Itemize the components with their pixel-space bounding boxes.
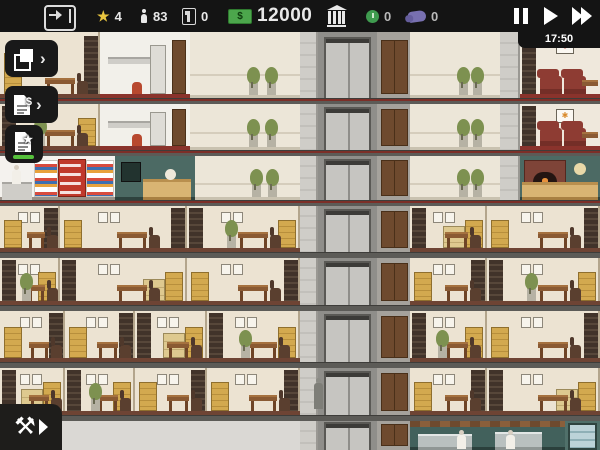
speed-controls	[514, 0, 592, 32]
closet	[189, 208, 203, 248]
office-chair	[120, 398, 131, 411]
desk-leg	[169, 348, 172, 358]
file-cabinet	[414, 382, 432, 411]
office-chair	[570, 398, 581, 411]
contracts-value: 0	[384, 9, 391, 24]
desk-leg	[240, 291, 243, 301]
armchair	[540, 128, 562, 146]
office-chair	[149, 288, 160, 301]
desk-leg	[264, 238, 267, 248]
office-unit[interactable]	[135, 310, 207, 362]
chevron-right-icon: ›	[36, 96, 42, 113]
plant-foliage	[471, 67, 484, 84]
wall-picture	[110, 264, 120, 275]
closet	[67, 370, 81, 411]
medical-office[interactable]	[100, 32, 190, 98]
lobby-doors[interactable]	[377, 32, 410, 98]
population-stat[interactable]: 83	[140, 9, 167, 24]
potted-plant-icon	[471, 117, 484, 147]
elevator-shaft[interactable]	[318, 103, 377, 150]
vacant-floor-space[interactable]	[410, 32, 500, 98]
file-cabinet	[165, 272, 183, 301]
bakery-counter	[522, 182, 598, 200]
chef-figure	[457, 430, 466, 450]
wall-picture	[433, 212, 443, 223]
desk-leg	[447, 291, 450, 301]
desk-leg	[564, 238, 567, 248]
wall-picture	[169, 374, 179, 385]
elevator-lobby-door	[381, 263, 395, 301]
fast-forward-icon[interactable]	[574, 7, 592, 25]
office-unit[interactable]	[207, 367, 300, 415]
deals-stat[interactable]: 0	[408, 9, 438, 24]
game-screen: ●✱ ★ 4 83 0 $ 12000 0 0 17:50	[0, 0, 600, 450]
closet	[137, 313, 151, 358]
menu-board	[121, 162, 141, 182]
desk-leg	[185, 348, 188, 358]
vacancy-value: 0	[201, 9, 208, 24]
elevator-cab	[324, 261, 371, 305]
plant-foliage	[20, 273, 33, 290]
file-cabinet	[4, 327, 22, 358]
medical-office[interactable]	[100, 103, 190, 150]
wall-picture	[32, 374, 42, 385]
wall-picture	[521, 374, 531, 385]
elevator-cab	[324, 422, 371, 450]
hammer-wrench-icon: ⚒	[14, 415, 36, 439]
desk-leg	[540, 401, 543, 411]
exit-door-icon[interactable]	[44, 5, 76, 31]
potted-plant-icon	[250, 167, 263, 197]
coffee-cup-sign	[165, 169, 176, 180]
elevator-cab	[324, 371, 371, 415]
office-chair	[470, 398, 481, 411]
contracts-stat[interactable]: 0	[366, 9, 391, 24]
floor-0: ●	[0, 32, 600, 98]
closet	[489, 260, 503, 301]
office-unit[interactable]	[65, 310, 135, 362]
potted-plant-icon	[247, 65, 260, 95]
wall-picture	[533, 374, 543, 385]
floor-3	[0, 205, 600, 252]
closet	[489, 370, 503, 411]
top-hud-bar: ★ 4 83 0 $ 12000 0 0	[0, 0, 600, 32]
medical-device	[150, 45, 166, 94]
lobby-wall[interactable]	[300, 155, 318, 200]
elevator-shaft[interactable]	[318, 420, 377, 450]
plant-foliage	[225, 220, 238, 237]
floor-slab	[0, 362, 600, 368]
office-chair	[77, 133, 88, 146]
office-unit[interactable]	[487, 367, 600, 415]
waiting-room[interactable]: ✱	[520, 103, 600, 150]
office-chair	[47, 235, 58, 248]
elevator-lobby-door	[394, 424, 408, 446]
lobby-doors[interactable]	[377, 205, 410, 252]
handshake-icon	[407, 9, 426, 22]
wall-picture	[445, 374, 455, 385]
desk-leg	[119, 291, 122, 301]
play-icon[interactable]	[544, 7, 558, 25]
plant-foliage	[247, 119, 260, 136]
lobby-wall[interactable]	[300, 32, 318, 98]
wall-picture	[30, 212, 40, 223]
office-chair	[120, 345, 131, 358]
floor-slab	[0, 252, 600, 258]
wall-picture	[433, 317, 443, 328]
vacant-floor-space[interactable]	[410, 155, 500, 200]
wall-picture	[235, 317, 245, 328]
elevator-shaft[interactable]	[318, 32, 377, 98]
potted-plant-icon	[457, 65, 470, 95]
exam-stool	[132, 134, 142, 146]
office-unit[interactable]	[65, 367, 135, 415]
desk-leg	[47, 136, 50, 146]
closet	[412, 208, 426, 248]
restaurant-kitchen[interactable]	[410, 420, 565, 450]
office-unit[interactable]	[410, 205, 487, 252]
office-unit[interactable]	[135, 367, 207, 415]
wall-picture	[247, 374, 257, 385]
plant-foliage	[247, 67, 260, 84]
office-unit[interactable]	[0, 257, 60, 305]
vacancy-stat[interactable]: 0	[182, 8, 208, 25]
desk-leg	[464, 238, 467, 248]
hanging-lamp	[574, 163, 586, 175]
office-chair	[149, 235, 160, 248]
prestige-stat[interactable]: ★ 4	[97, 8, 122, 25]
chevron-right-icon	[39, 419, 48, 435]
invoice-dollar-icon: $	[14, 95, 30, 115]
exam-stool	[132, 82, 142, 94]
floor-slab	[0, 305, 600, 311]
wall-picture	[98, 264, 108, 275]
office-chair	[77, 81, 88, 94]
elevator-lobby-door	[394, 373, 408, 411]
desk-leg	[540, 348, 543, 358]
desk-leg	[464, 401, 467, 411]
floor-slab	[0, 98, 600, 104]
wall-picture	[445, 264, 455, 275]
office-chair	[191, 398, 202, 411]
plant-foliage	[436, 330, 449, 347]
desk-leg	[540, 238, 543, 248]
tower-cross-section[interactable]: ●✱	[0, 0, 600, 450]
lobby-doors[interactable]	[377, 420, 410, 450]
office-unit[interactable]	[0, 310, 65, 362]
plant-foliage	[457, 119, 470, 136]
coffee-shop[interactable]	[115, 155, 195, 200]
lobby-doors[interactable]	[377, 310, 410, 362]
floor-1: ✱	[0, 103, 600, 150]
wall-picture	[157, 374, 167, 385]
money-stat[interactable]: $ 12000	[228, 5, 312, 27]
plant-foliage	[457, 169, 470, 186]
build-menu-button[interactable]: ⚒	[0, 404, 62, 450]
office-unit[interactable]	[487, 310, 600, 362]
elevator-lobby-door	[381, 109, 395, 146]
room-door	[172, 40, 186, 94]
potted-plant-icon	[471, 65, 484, 95]
wall-picture	[221, 264, 231, 275]
copy-pages-icon	[14, 49, 34, 69]
wall-picture	[98, 374, 108, 385]
armchair	[540, 76, 562, 94]
lobby-wall[interactable]	[300, 310, 318, 362]
prestige-value: 4	[115, 9, 122, 24]
wall-picture	[98, 317, 108, 328]
desk-leg	[71, 84, 74, 94]
file-cabinet	[139, 382, 157, 411]
red-fridge-case	[58, 159, 86, 197]
closet	[412, 313, 426, 358]
office-chair	[570, 345, 581, 358]
office-unit[interactable]	[207, 310, 300, 362]
potted-plant-icon	[471, 167, 484, 197]
office-chair	[270, 235, 281, 248]
elevator-lobby-door	[394, 160, 408, 196]
floor-6	[0, 367, 600, 415]
desk-leg	[273, 401, 276, 411]
office-chair	[570, 235, 581, 248]
plant-foliage	[457, 67, 470, 84]
file-cabinet	[69, 327, 87, 358]
potted-plant-icon	[457, 167, 470, 197]
desk-leg	[240, 238, 243, 248]
desk-leg	[114, 348, 117, 358]
office-unit[interactable]	[187, 205, 300, 252]
desk-leg	[31, 348, 34, 358]
active-indicator	[13, 155, 34, 159]
desk-leg	[251, 401, 254, 411]
closet	[584, 208, 598, 248]
person-figure[interactable]	[314, 378, 323, 415]
wall-picture	[20, 374, 30, 385]
plant-foliage	[525, 273, 538, 290]
finances-report-button[interactable]: $ ›	[5, 86, 58, 123]
bakery-shop[interactable]	[520, 155, 600, 200]
elevator-lobby-door	[394, 263, 408, 301]
plant-foliage	[471, 119, 484, 136]
population-value: 83	[153, 9, 167, 24]
product-shelves	[34, 160, 58, 197]
plant-foliage	[265, 67, 278, 84]
elevator-lobby-door	[381, 316, 395, 358]
money-value: 12000	[257, 5, 312, 27]
lobby-wall[interactable]	[300, 205, 318, 252]
elevator-cab	[324, 314, 371, 362]
office-chair	[470, 288, 481, 301]
floor-slab	[0, 150, 600, 156]
file-cabinet	[414, 272, 432, 301]
lobby-wall[interactable]	[500, 32, 520, 98]
desk-leg	[447, 401, 450, 411]
game-clock: 17:50	[518, 32, 600, 48]
potted-plant-icon	[525, 277, 538, 301]
desk-leg	[273, 348, 276, 358]
clerk-figure	[12, 165, 21, 184]
closet	[284, 260, 298, 301]
potted-plant-icon	[20, 277, 33, 301]
wall-picture	[521, 212, 531, 223]
wall-picture	[445, 317, 455, 328]
desk-leg	[447, 238, 450, 248]
chef-figure	[506, 430, 515, 450]
vacant-floor-space[interactable]	[410, 103, 500, 150]
desk-leg	[41, 238, 44, 248]
drink-cooler-room[interactable]	[565, 420, 600, 450]
office-unit[interactable]	[60, 257, 187, 305]
office-chair	[570, 288, 581, 301]
checkout-counter	[2, 182, 32, 200]
floor-slab	[0, 200, 600, 206]
wall-picture	[533, 212, 543, 223]
lobby-doors[interactable]	[377, 367, 410, 415]
desk-leg	[264, 291, 267, 301]
desk-leg	[169, 401, 172, 411]
desk-leg	[45, 348, 48, 358]
closet	[171, 208, 185, 248]
potted-plant-icon	[247, 117, 260, 147]
wall-picture	[98, 212, 108, 223]
deals-value: 0	[431, 9, 438, 24]
bank-button[interactable]	[328, 8, 345, 24]
lobby-wall[interactable]	[500, 103, 520, 150]
wall-picture	[169, 317, 179, 328]
reception-desk	[582, 80, 598, 86]
pause-icon[interactable]	[514, 8, 528, 24]
office-unit[interactable]	[60, 205, 187, 252]
elevator-shaft[interactable]	[318, 257, 377, 305]
plant-foliage	[471, 169, 484, 186]
wall-picture	[235, 374, 245, 385]
wall-picture	[433, 264, 443, 275]
wall-picture	[445, 212, 455, 223]
plant-foliage	[89, 383, 102, 400]
wall-picture	[233, 264, 243, 275]
drink-cooler	[568, 423, 597, 450]
cafe-counter	[143, 179, 191, 200]
file-cabinet	[64, 220, 82, 248]
office-unit[interactable]	[187, 257, 300, 305]
wall-picture	[157, 317, 167, 328]
vacant-floor-space[interactable]	[190, 103, 300, 150]
office-chair	[270, 288, 281, 301]
potted-plant-icon	[457, 117, 470, 147]
lobby-wall[interactable]	[300, 103, 318, 150]
desk-leg	[71, 136, 74, 146]
elevator-shaft[interactable]	[318, 155, 377, 200]
elevator-shaft[interactable]	[318, 205, 377, 252]
cash-bill-icon: $	[228, 9, 252, 24]
desk-leg	[29, 238, 32, 248]
elevator-lobby-door	[381, 211, 395, 248]
desk-leg	[143, 291, 146, 301]
office-unit[interactable]	[410, 310, 487, 362]
desk-leg	[464, 348, 467, 358]
desk-leg	[540, 291, 543, 301]
elevator-cab	[324, 159, 371, 200]
office-chair	[470, 345, 481, 358]
vacant-floor-space[interactable]	[190, 32, 300, 98]
plant-foliage	[239, 330, 252, 347]
desk-leg	[564, 291, 567, 301]
office-unit[interactable]	[487, 205, 600, 252]
floor-5	[0, 310, 600, 362]
contracts-report-button[interactable]: ★	[5, 125, 43, 163]
office-chair	[191, 345, 202, 358]
lobby-wall[interactable]	[300, 420, 318, 450]
office-chair	[279, 398, 290, 411]
wall-picture	[110, 212, 120, 223]
desk-leg	[119, 238, 122, 248]
product-shelves	[86, 160, 114, 197]
medical-device	[150, 112, 166, 146]
lobby-doors[interactable]	[377, 257, 410, 305]
desk-leg	[564, 401, 567, 411]
decor-shelf	[410, 420, 565, 427]
copy-tool-button[interactable]: ›	[5, 40, 58, 77]
potted-plant-icon	[436, 334, 449, 358]
desk-leg	[41, 291, 44, 301]
office-chair	[470, 235, 481, 248]
office-unit[interactable]	[0, 205, 60, 252]
file-cabinet	[211, 382, 229, 411]
lobby-doors[interactable]	[377, 103, 410, 150]
potted-plant-icon	[265, 65, 278, 95]
wall-picture	[433, 374, 443, 385]
closet	[209, 313, 223, 358]
elevator-lobby-door	[394, 316, 408, 358]
elevator-shaft[interactable]	[318, 310, 377, 362]
wall-picture	[32, 317, 42, 328]
elevator-lobby-door	[394, 211, 408, 248]
office-unit[interactable]	[410, 257, 487, 305]
wall-picture	[533, 317, 543, 328]
document-star-icon: ★	[15, 132, 31, 152]
elevator-lobby-door	[381, 373, 395, 411]
elevator-shaft[interactable]	[318, 367, 377, 415]
elevator-lobby-door	[381, 40, 395, 94]
potted-plant-icon	[239, 334, 252, 358]
chevron-right-icon: ›	[40, 50, 46, 67]
elevator-lobby-door	[381, 160, 395, 196]
desk-leg	[143, 238, 146, 248]
unit-flag-icon	[182, 8, 196, 25]
office-unit[interactable]	[410, 367, 487, 415]
bank-icon	[328, 11, 345, 24]
desk-leg	[99, 348, 102, 358]
office-unit[interactable]	[487, 257, 600, 305]
lobby-wall[interactable]	[300, 257, 318, 305]
closet	[584, 313, 598, 358]
room-door	[172, 109, 186, 146]
file-cabinet	[491, 220, 509, 248]
potted-plant-icon	[266, 167, 279, 197]
desk-leg	[114, 401, 117, 411]
lobby-wall[interactable]	[500, 155, 520, 200]
elevator-cab	[324, 209, 371, 252]
closet	[2, 260, 16, 301]
desk-leg	[185, 401, 188, 411]
desk-leg	[564, 348, 567, 358]
elevator-lobby-door	[381, 424, 395, 446]
wardrobe	[522, 106, 536, 146]
star-icon: ★	[97, 8, 110, 25]
clock-time: 17:50	[545, 33, 573, 45]
lobby-doors[interactable]	[377, 155, 410, 200]
vacant-floor-space[interactable]	[195, 155, 300, 200]
